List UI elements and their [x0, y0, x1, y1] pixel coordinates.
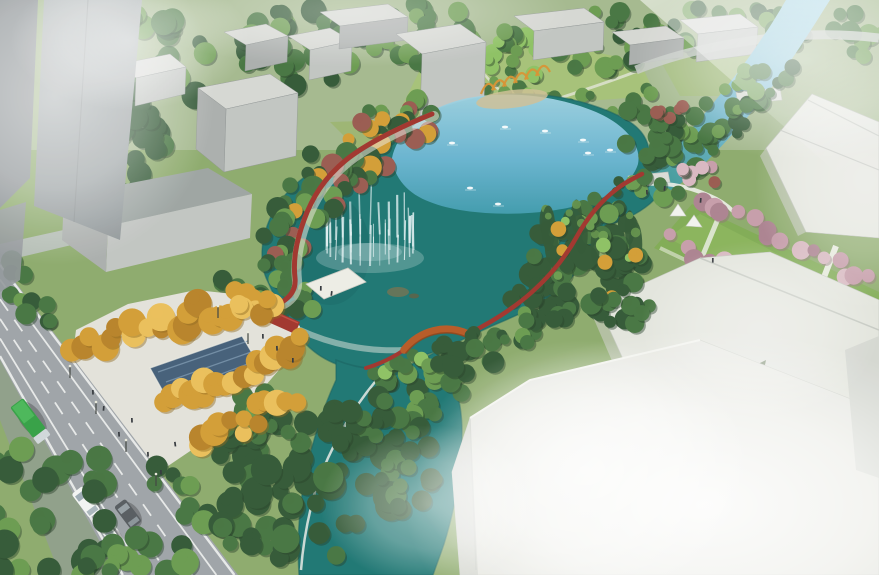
fog-layer	[0, 0, 879, 575]
park-rendering	[0, 0, 879, 575]
rendering-stage	[0, 0, 879, 575]
